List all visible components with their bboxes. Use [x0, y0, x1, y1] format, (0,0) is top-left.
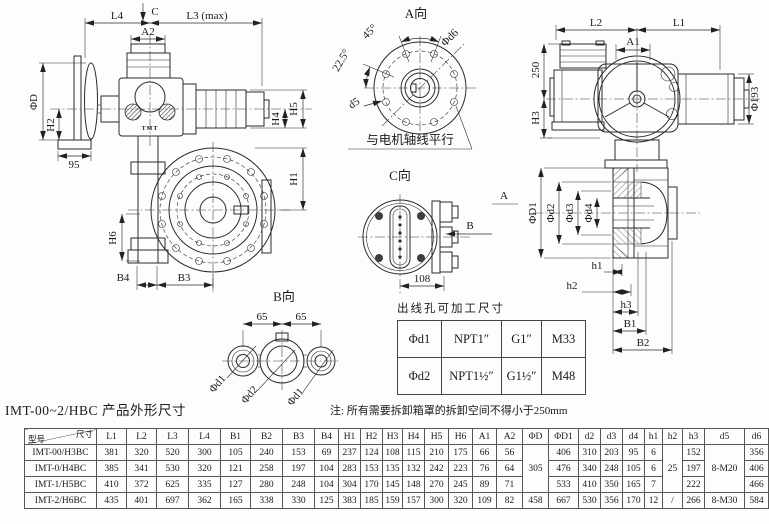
dim-table-col-header: A1: [473, 429, 497, 445]
direction-label-b: B: [466, 220, 473, 232]
dim-table-cell: 383: [339, 493, 361, 509]
dim-label-phid2: Φd2: [239, 384, 260, 406]
dim-table-col-header: H1: [339, 429, 361, 445]
outlet-table-cell: Φd2: [398, 358, 442, 395]
dim-table-cell: 104: [315, 461, 339, 477]
dim-table-cell: 242: [425, 461, 449, 477]
dim-table-cell: 157: [403, 493, 425, 509]
dim-table-cell: 165: [623, 477, 645, 493]
dim-label-108: 108: [414, 273, 431, 285]
dim-table-cell: 152: [683, 445, 705, 461]
dim-table-col-header: d5: [705, 429, 745, 445]
knob-icon: [125, 104, 141, 120]
dim-label-65a: 65: [257, 311, 269, 323]
dim-label-a2: A2: [141, 26, 154, 38]
dim-table-cell: 466: [745, 477, 769, 493]
drawing-svg: TMT: [0, 0, 769, 425]
dim-table-cell: 125: [315, 493, 339, 509]
dim-table-col-header: L1: [97, 429, 127, 445]
dim-table-cell: 320: [127, 445, 157, 461]
dim-table-cell: 170: [623, 493, 645, 509]
dim-label-phid3: Φd3: [564, 203, 576, 223]
dim-table-cell: 372: [127, 477, 157, 493]
dim-table-col-header: d4: [623, 429, 645, 445]
dim-table-col-header: d6: [745, 429, 769, 445]
dim-table-cell: 135: [383, 461, 403, 477]
dim-label-phid: ΦD: [28, 94, 40, 110]
dim-table-cell: 245: [449, 477, 473, 493]
view-b-label: B向: [273, 289, 295, 304]
dim-table-cell: 458: [523, 493, 549, 509]
dim-table-cell: 237: [339, 445, 361, 461]
dim-label-phid4: Φd4: [583, 203, 595, 223]
dim-table-cell: 66: [473, 445, 497, 461]
dim-table-cell: 6: [645, 445, 663, 461]
outlet-table-body: Φd1NPT1″G1″M33Φd2NPT1½″G1½″M48: [398, 321, 586, 395]
dim-table-col-header: d3: [601, 429, 623, 445]
note-text: 注: 所有需要拆卸箱罩的拆卸空间不得小于250mm: [330, 402, 567, 418]
dim-table-cell: 584: [745, 493, 769, 509]
dim-table-cell: 56: [497, 445, 523, 461]
dim-table-cell: 145: [383, 477, 403, 493]
dim-label-sec-h1: h1: [592, 260, 603, 272]
dim-table-cell: 159: [383, 493, 403, 509]
dim-table-col-header: h3: [683, 429, 705, 445]
dim-label-d5: d5: [346, 95, 362, 111]
dim-label-a1: A1: [626, 36, 639, 48]
dim-table-cell: 105: [623, 461, 645, 477]
dim-table-cell: 71: [497, 477, 523, 493]
dim-label-phid1a: Φd1: [207, 373, 228, 395]
dim-label-45deg: 45°: [360, 22, 379, 41]
dim-label-22-5deg: 22.5°: [330, 47, 352, 73]
dim-table-model-cell: IMT-1/H5BC: [25, 477, 97, 493]
dim-label-h2: H2: [45, 118, 57, 131]
dim-label-phid1: ΦD1: [527, 202, 539, 223]
front-view: L2 L1 A1 250 H3 Φ193: [530, 17, 762, 172]
dim-table-col-header: B3: [283, 429, 315, 445]
dim-table-row: IMT-00/H3BC38132052030010524015369237124…: [25, 445, 769, 461]
view-a-note: 与电机轴线平行: [366, 132, 454, 147]
dim-table-col-header: H6: [449, 429, 473, 445]
dim-table-cell: 153: [361, 461, 383, 477]
outlet-table-cell: NPT1½″: [442, 358, 502, 395]
dim-table-cell: 356: [745, 445, 769, 461]
outlet-table-cell: Φd1: [398, 321, 442, 358]
view-b: B向 65 65 Φd1 Φd2 Φd1: [207, 289, 340, 408]
dim-table-cell: 240: [251, 445, 283, 461]
dim-table-cell: 406: [549, 445, 579, 461]
knob-icon: [159, 104, 175, 120]
dim-table-cell: 530: [579, 493, 601, 509]
dim-table-cell: 304: [339, 477, 361, 493]
dim-table-cell: 108: [383, 445, 403, 461]
dim-table-cell: 248: [283, 477, 315, 493]
dim-label-95: 95: [69, 159, 81, 171]
dim-table-cell: 697: [157, 493, 189, 509]
dim-table-col-header: h2: [663, 429, 683, 445]
dim-table-cell: 104: [315, 477, 339, 493]
dim-table-model-cell: IMT-0/H4BC: [25, 461, 97, 477]
dim-label-sec-h2: h2: [567, 280, 578, 292]
view-c: C向 108 B A: [358, 168, 518, 294]
outlet-table-cell: M48: [542, 358, 586, 395]
dim-table-col-header: A2: [497, 429, 523, 445]
dim-label-l3: L3 (max): [186, 10, 228, 22]
dim-table-col-header: B1: [221, 429, 251, 445]
dim-table-cell: 283: [339, 461, 361, 477]
dim-table-cell: 170: [361, 477, 383, 493]
dim-table-cell: 530: [157, 461, 189, 477]
dim-table-cell: 127: [221, 477, 251, 493]
dim-table-col-header: ΦD: [523, 429, 549, 445]
dim-label-phid6: Φd6: [439, 27, 461, 49]
dim-table-cell: 148: [403, 477, 425, 493]
dim-table-col-header: d2: [579, 429, 601, 445]
dim-table-cell: 25: [663, 445, 683, 493]
dim-table-cell: 248: [601, 461, 623, 477]
dim-table-cell: 533: [549, 477, 579, 493]
dim-table-cell: 305: [523, 445, 549, 493]
view-c-label: C向: [389, 168, 411, 183]
dim-table-row: IMT-1/H5BC410372625335127280248104304170…: [25, 477, 769, 493]
dim-table-cell: 197: [283, 461, 315, 477]
dim-label-h1: H1: [288, 172, 300, 185]
page-title: IMT-00~2/HBC 产品外形尺寸: [5, 399, 186, 419]
dim-table-cell: 76: [473, 461, 497, 477]
dim-table-cell: 625: [157, 477, 189, 493]
dim-table-cell: 175: [449, 445, 473, 461]
dim-label-sec-b1: B1: [624, 318, 637, 330]
dim-table-corner-cell: 尺寸 型号: [25, 429, 97, 445]
dim-label-phi193: Φ193: [749, 86, 761, 111]
dim-table-cell: 320: [189, 461, 221, 477]
dim-table-cell: 89: [473, 477, 497, 493]
outlet-table-cell: G1½″: [502, 358, 542, 395]
dim-table-cell: 350: [601, 477, 623, 493]
dim-table-cell: 121: [221, 461, 251, 477]
dim-label-l2: L2: [590, 17, 602, 29]
dim-label-65b: 65: [296, 311, 308, 323]
dim-table-cell: 258: [251, 461, 283, 477]
dim-table-cell: 223: [449, 461, 473, 477]
side-view: TMT: [28, 3, 312, 292]
brand-logo: TMT: [142, 126, 159, 132]
dim-table-col-header: H4: [403, 429, 425, 445]
dim-label-h4: H4: [270, 112, 282, 126]
outlet-table-row: Φd1NPT1″G1″M33: [398, 321, 586, 358]
dim-table-cell: 280: [251, 477, 283, 493]
dim-table-col-header: B2: [251, 429, 283, 445]
dim-table-cell: 667: [549, 493, 579, 509]
dim-table-header-row: 尺寸 型号 L1L2L3L4B1B2B3B4H1H2H3H4H5H6A1A2ΦD…: [25, 429, 769, 445]
dim-table-cell: 270: [425, 477, 449, 493]
dim-label-l1: L1: [673, 17, 685, 29]
dim-table-cell: 341: [127, 461, 157, 477]
outlet-table-cell: M33: [542, 321, 586, 358]
dim-label-sec-h3: h3: [621, 299, 633, 311]
dim-table-cell: 153: [283, 445, 315, 461]
dim-table-col-header: L2: [127, 429, 157, 445]
view-a-label: A向: [405, 6, 427, 21]
dim-label-b4: B4: [117, 272, 130, 284]
dim-table-cell: /: [663, 493, 683, 509]
dim-label-h6: H6: [107, 231, 119, 245]
dim-table-cell: 8-M30: [705, 493, 745, 509]
dim-table-cell: 197: [683, 461, 705, 477]
dim-table-cell: 385: [97, 461, 127, 477]
dim-table-cell: 362: [189, 493, 221, 509]
outlet-table-row: Φd2NPT1½″G1½″M48: [398, 358, 586, 395]
dim-table-col-header: L3: [157, 429, 189, 445]
drawing-sheet: TMT: [0, 0, 769, 524]
dim-table-cell: 300: [425, 493, 449, 509]
dim-label-phid2: Φd2: [545, 203, 557, 222]
dim-label-phid1b: Φd1: [285, 386, 306, 408]
dim-label-c: C: [151, 6, 158, 18]
outlet-table-title: 出线孔可加工尺寸: [397, 300, 586, 316]
dim-table-cell: 115: [403, 445, 425, 461]
dimension-table: 尺寸 型号 L1L2L3L4B1B2B3B4H1H2H3H4H5H6A1A2ΦD…: [24, 428, 769, 509]
dim-table-cell: 340: [579, 461, 601, 477]
dim-table-col-header: h1: [645, 429, 663, 445]
dim-table-cell: 12: [645, 493, 663, 509]
dim-label-250: 250: [530, 61, 542, 78]
dim-table-cell: 7: [645, 477, 663, 493]
dim-table-cell: 8-M20: [705, 445, 745, 493]
dim-table-col-header: H3: [383, 429, 403, 445]
dim-table-cell: 410: [579, 477, 601, 493]
dim-table-cell: 320: [449, 493, 473, 509]
dim-table-row: IMT-2/H6BC435401697362165338330125383185…: [25, 493, 769, 509]
outlet-table-cell: G1″: [502, 321, 542, 358]
dim-table-cell: 476: [549, 461, 579, 477]
dim-table-cell: 381: [97, 445, 127, 461]
outlet-table: 出线孔可加工尺寸 Φd1NPT1″G1″M33Φd2NPT1½″G1½″M48: [397, 300, 586, 395]
dim-table-cell: 203: [601, 445, 623, 461]
dim-table-cell: 410: [97, 477, 127, 493]
dim-table-cell: 406: [745, 461, 769, 477]
dim-label-sec-b2: B2: [637, 337, 650, 349]
dim-label-l4: L4: [111, 10, 124, 22]
dim-table-cell: 185: [361, 493, 383, 509]
dim-table-col-header: H5: [425, 429, 449, 445]
dim-table-cell: 310: [579, 445, 601, 461]
dim-table-cell: 401: [127, 493, 157, 509]
direction-label-a: A: [500, 190, 508, 202]
dim-table-cell: 165: [221, 493, 251, 509]
dim-table-cell: 520: [157, 445, 189, 461]
dim-table-cell: 109: [473, 493, 497, 509]
dim-table-cell: 335: [189, 477, 221, 493]
dim-table-row: IMT-0/H4BC385341530320121258197104283153…: [25, 461, 769, 477]
dim-table-body: IMT-00/H3BC38132052030010524015369237124…: [25, 445, 769, 509]
outlet-table-cell: NPT1″: [442, 321, 502, 358]
corner-label-dim: 尺寸: [76, 429, 93, 441]
dim-table-col-header: H2: [361, 429, 383, 445]
dim-table-cell: 266: [683, 493, 705, 509]
dim-table-cell: 132: [403, 461, 425, 477]
dim-table-cell: 210: [425, 445, 449, 461]
dim-label-h3: H3: [530, 111, 542, 125]
dim-table-model-cell: IMT-2/H6BC: [25, 493, 97, 509]
dim-table-col-header: ΦD1: [549, 429, 579, 445]
dim-table-cell: 338: [251, 493, 283, 509]
dim-table-cell: 82: [497, 493, 523, 509]
dim-table-col-header: L4: [189, 429, 221, 445]
dim-table-cell: 300: [189, 445, 221, 461]
dim-table-cell: 330: [283, 493, 315, 509]
dim-table-cell: 105: [221, 445, 251, 461]
corner-label-model: 型号: [28, 433, 45, 445]
dim-label-h5: H5: [288, 102, 300, 116]
dim-table-cell: 64: [497, 461, 523, 477]
view-a: A向 45° 22.5° Φd6 d5 与电机轴线平行: [330, 6, 476, 149]
dim-table-cell: 222: [683, 477, 705, 493]
dim-table-model-cell: IMT-00/H3BC: [25, 445, 97, 461]
dim-table-cell: 69: [315, 445, 339, 461]
dim-table-cell: 435: [97, 493, 127, 509]
dim-table-cell: 124: [361, 445, 383, 461]
dim-label-b3: B3: [178, 272, 191, 284]
dim-table-cell: 356: [601, 493, 623, 509]
dim-table-cell: 95: [623, 445, 645, 461]
dim-table-col-header: B4: [315, 429, 339, 445]
dim-table-cell: 6: [645, 461, 663, 477]
